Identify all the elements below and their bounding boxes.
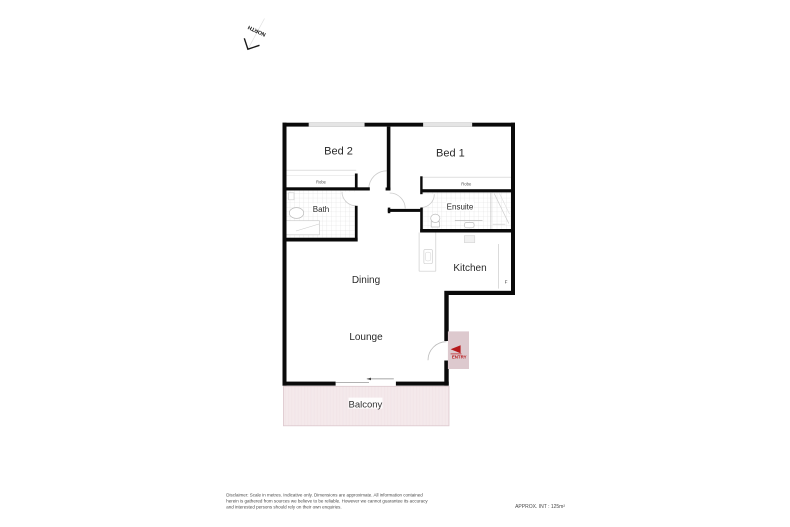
- svg-text:herein is gathered from source: herein is gathered from sources we belie…: [226, 498, 428, 503]
- svg-text:Dining: Dining: [352, 275, 380, 286]
- svg-text:Robe: Robe: [316, 179, 327, 184]
- svg-text:ENTRY: ENTRY: [452, 355, 467, 360]
- svg-text:Bed 1: Bed 1: [436, 147, 465, 159]
- svg-text:and interested persons should: and interested persons should rely on th…: [226, 504, 341, 509]
- svg-text:Disclaimer: Scale in metres. I: Disclaimer: Scale in metres. Indicative …: [226, 492, 423, 497]
- svg-text:Balcony: Balcony: [348, 399, 382, 410]
- svg-text:APPROX. INT : 125m²: APPROX. INT : 125m²: [515, 504, 565, 510]
- svg-text:Robe: Robe: [461, 181, 472, 186]
- svg-text:Kitchen: Kitchen: [453, 263, 486, 274]
- svg-text:Lounge: Lounge: [349, 332, 383, 343]
- svg-text:Bed 2: Bed 2: [324, 146, 353, 158]
- svg-text:F: F: [505, 280, 508, 285]
- svg-text:Bath: Bath: [313, 205, 329, 214]
- svg-text:Ensuite: Ensuite: [447, 203, 474, 212]
